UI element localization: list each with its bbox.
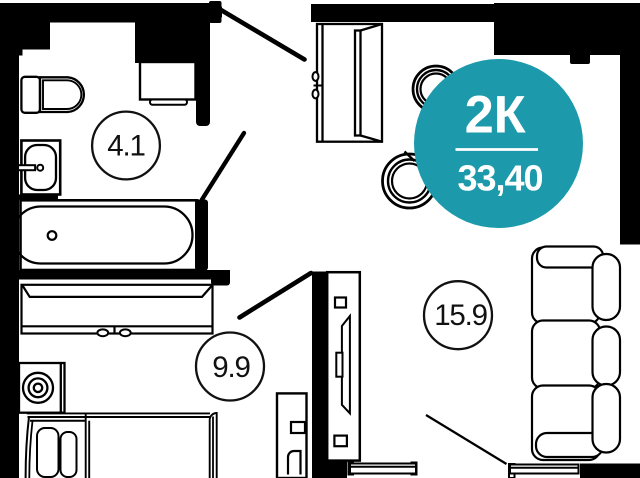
svg-text:15.9: 15.9 [434,299,487,332]
svg-text:2К: 2К [465,86,527,145]
svg-text:33,40: 33,40 [457,158,542,199]
svg-text:4.1: 4.1 [107,130,144,163]
svg-text:9.9: 9.9 [212,351,250,384]
